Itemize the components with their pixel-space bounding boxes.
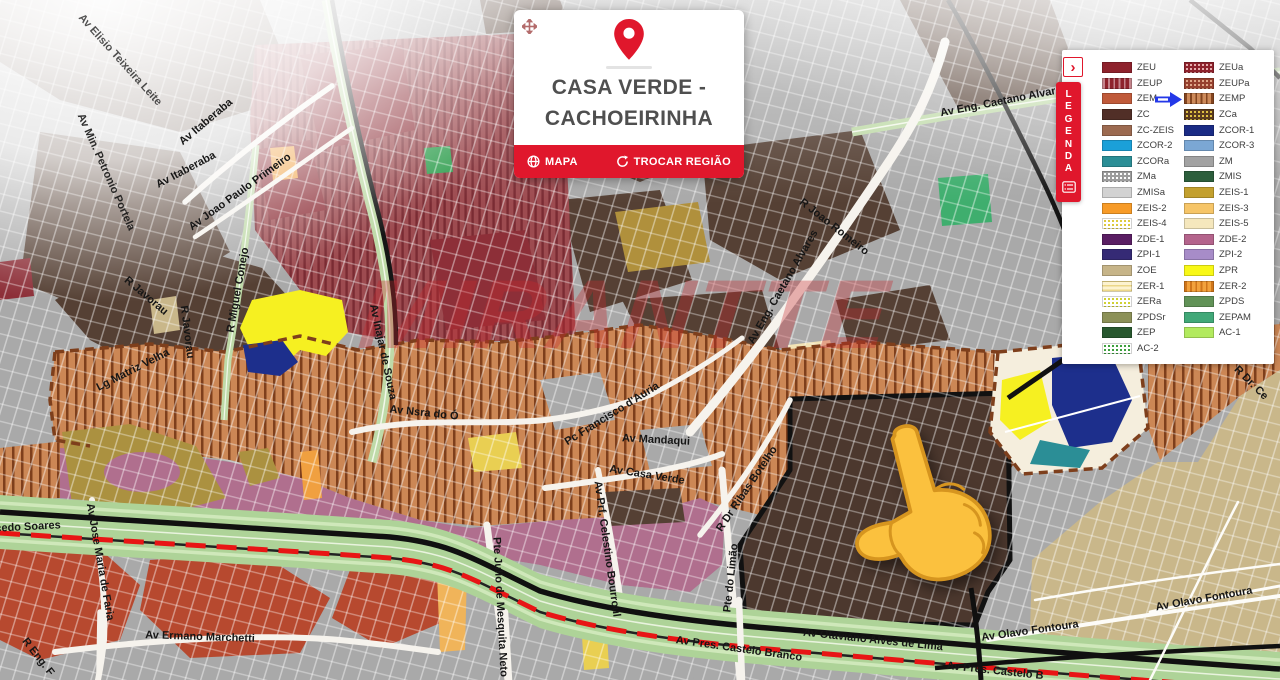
legend-swatch xyxy=(1102,249,1132,260)
change-region-button[interactable]: TROCAR REGIÃO xyxy=(616,155,731,168)
legend-label: ZPDSr xyxy=(1137,312,1166,323)
legend-label: ZEIS-4 xyxy=(1137,218,1167,229)
legend-swatch xyxy=(1184,156,1214,167)
legend-swatch xyxy=(1102,187,1132,198)
legend-item: ZCOR-3 xyxy=(1184,138,1254,154)
legend-label: ZOE xyxy=(1137,265,1157,276)
legend-swatch xyxy=(1184,265,1214,276)
legend-label: ZCa xyxy=(1219,109,1237,120)
legend-swatch xyxy=(1184,249,1214,260)
legend-label: ZDE-2 xyxy=(1219,234,1246,245)
legend-item: AC-1 xyxy=(1184,325,1254,341)
region-title-line2: CACHOEIRINHA xyxy=(514,107,744,131)
legend-label: ZEIS-1 xyxy=(1219,187,1249,198)
legend-item: ZPR xyxy=(1184,263,1254,279)
legend-swatch xyxy=(1184,171,1214,182)
legend-panel: › LEGENDA ZEUZEUPZEMZCZC-ZEISZCOR-2ZCORa… xyxy=(1062,50,1274,364)
legend-swatch xyxy=(1184,312,1214,323)
legend-item: ZPI-1 xyxy=(1102,247,1174,263)
legend-tab-title: LEGENDA xyxy=(1065,89,1073,176)
legend-swatch xyxy=(1102,327,1132,338)
legend-label: ZEIS-5 xyxy=(1219,218,1249,229)
legend-label: ZDE-1 xyxy=(1137,234,1164,245)
legend-label: ZEMP xyxy=(1219,93,1245,104)
legend-label: ZPDS xyxy=(1219,296,1244,307)
legend-swatch xyxy=(1102,140,1132,151)
legend-swatch xyxy=(1102,281,1132,292)
legend-label: ZCOR-3 xyxy=(1219,140,1254,151)
legend-label: AC-2 xyxy=(1137,343,1159,354)
region-title-line1: CASA VERDE - xyxy=(514,76,744,100)
legend-label: ZEPAM xyxy=(1219,312,1251,323)
legend-label: ZEUP xyxy=(1137,78,1162,89)
legend-swatch xyxy=(1102,93,1132,104)
legend-tab[interactable]: LEGENDA xyxy=(1056,82,1081,202)
legend-item: ZEIS-4 xyxy=(1102,216,1174,232)
legend-item: ZEUP xyxy=(1102,76,1174,92)
legend-item: ZERa xyxy=(1102,294,1174,310)
legend-swatch xyxy=(1102,343,1132,354)
legend-item: ZER-1 xyxy=(1102,278,1174,294)
legend-swatch xyxy=(1184,93,1214,104)
legend-label: ZMIS xyxy=(1219,171,1242,182)
legend-swatch xyxy=(1184,203,1214,214)
legend-item: ZEIS-1 xyxy=(1184,185,1254,201)
drag-move-icon[interactable] xyxy=(522,19,537,39)
legend-item: ZPI-2 xyxy=(1184,247,1254,263)
legend-item: ZEIS-5 xyxy=(1184,216,1254,232)
legend-item: ZMa xyxy=(1102,169,1174,185)
legend-swatch xyxy=(1184,281,1214,292)
legend-label: ZEIS-2 xyxy=(1137,203,1167,214)
legend-item: ZCOR-1 xyxy=(1184,122,1254,138)
legend-swatch xyxy=(1102,218,1132,229)
legend-item: ZEIS-3 xyxy=(1184,200,1254,216)
legend-item: ZER-2 xyxy=(1184,278,1254,294)
legend-item: ZM xyxy=(1184,154,1254,170)
legend-item: ZDE-1 xyxy=(1102,232,1174,248)
legend-label: ZCOR-1 xyxy=(1219,125,1254,136)
legend-label: ZMa xyxy=(1137,171,1156,182)
legend-swatch xyxy=(1184,187,1214,198)
legend-label: ZPI-1 xyxy=(1137,249,1160,260)
legend-label: ZCOR-2 xyxy=(1137,140,1172,151)
legend-item: ZDE-2 xyxy=(1184,232,1254,248)
legend-item: ZC xyxy=(1102,107,1174,123)
legend-item: ZEUPa xyxy=(1184,76,1254,92)
legend-swatch xyxy=(1102,171,1132,182)
legend-swatch xyxy=(1102,125,1132,136)
map-app: MIRANTTE Av Elisio Teixeira LeiteAv Min.… xyxy=(0,0,1280,680)
legend-item: ZCORa xyxy=(1102,154,1174,170)
region-card: CASA VERDE - CACHOEIRINHA MAPA TROCAR RE… xyxy=(514,10,744,178)
legend-swatch xyxy=(1184,234,1214,245)
legend-item: ZC-ZEIS xyxy=(1102,122,1174,138)
refresh-icon xyxy=(616,155,629,168)
legend-label: ZPI-2 xyxy=(1219,249,1242,260)
legend-swatch xyxy=(1184,125,1214,136)
legend-swatch xyxy=(1184,62,1214,73)
legend-item: ZCOR-2 xyxy=(1102,138,1174,154)
legend-item: AC-2 xyxy=(1102,341,1174,357)
legend-label: ZER-1 xyxy=(1137,281,1164,292)
legend-swatch xyxy=(1102,265,1132,276)
legend-label: ZEP xyxy=(1137,327,1155,338)
card-action-bar: MAPA TROCAR REGIÃO xyxy=(514,145,744,178)
legend-swatch xyxy=(1102,203,1132,214)
legend-swatch xyxy=(1184,109,1214,120)
legend-item: ZEPAM xyxy=(1184,310,1254,326)
legend-item: ZEMP xyxy=(1184,91,1254,107)
legend-label: AC-1 xyxy=(1219,327,1241,338)
legend-label: ZPR xyxy=(1219,265,1238,276)
legend-label: ZER-2 xyxy=(1219,281,1246,292)
legend-swatch xyxy=(1184,327,1214,338)
legend-swatch xyxy=(1102,78,1132,89)
legend-label: ZEUPa xyxy=(1219,78,1250,89)
legend-swatch xyxy=(1102,296,1132,307)
legend-swatch xyxy=(1102,312,1132,323)
legend-label: ZERa xyxy=(1137,296,1161,307)
legend-label: ZMISa xyxy=(1137,187,1165,198)
legend-item: ZCa xyxy=(1184,107,1254,123)
legend-label: ZEIS-3 xyxy=(1219,203,1249,214)
legend-swatch xyxy=(1102,156,1132,167)
legend-label: ZC-ZEIS xyxy=(1137,125,1174,136)
legend-item: ZMISa xyxy=(1102,185,1174,201)
legend-item: ZEIS-2 xyxy=(1102,200,1174,216)
list-icon xyxy=(1062,180,1076,198)
globe-icon xyxy=(527,155,540,168)
legend-collapse-button[interactable]: › xyxy=(1063,57,1083,77)
legend-item: ZEP xyxy=(1102,325,1174,341)
map-button[interactable]: MAPA xyxy=(527,155,578,168)
legend-label: ZCORa xyxy=(1137,156,1169,167)
card-divider xyxy=(606,66,652,69)
legend-item: ZPDSr xyxy=(1102,310,1174,326)
legend-label: ZEU xyxy=(1137,62,1156,73)
legend-label: ZC xyxy=(1137,109,1150,120)
legend-swatch xyxy=(1102,109,1132,120)
legend-item: ZOE xyxy=(1102,263,1174,279)
location-pin-icon xyxy=(613,19,645,66)
legend-swatch xyxy=(1184,78,1214,89)
legend-swatch xyxy=(1184,218,1214,229)
legend-swatch xyxy=(1102,62,1132,73)
legend-label: ZEUa xyxy=(1219,62,1243,73)
legend-swatch xyxy=(1184,140,1214,151)
legend-item: ZEUa xyxy=(1184,60,1254,76)
legend-item: ZPDS xyxy=(1184,294,1254,310)
legend-item: ZMIS xyxy=(1184,169,1254,185)
legend-item: ZEU xyxy=(1102,60,1174,76)
highlight-arrow-icon xyxy=(1155,92,1182,107)
legend-label: ZM xyxy=(1219,156,1233,167)
legend-swatch xyxy=(1102,234,1132,245)
legend-swatch xyxy=(1184,296,1214,307)
